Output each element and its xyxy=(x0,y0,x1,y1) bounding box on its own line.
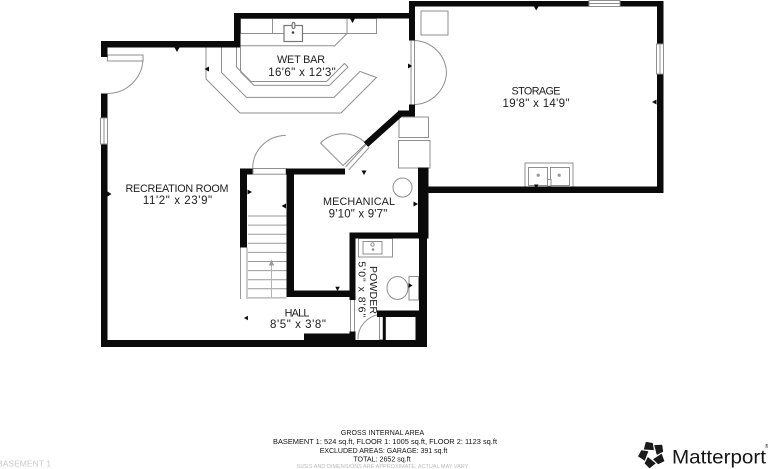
svg-text:TOTAL: 2652 sq.ft: TOTAL: 2652 sq.ft xyxy=(353,456,410,464)
svg-text:STORAGE: STORAGE xyxy=(512,86,561,98)
svg-text:BASEMENT 1: 524 sq.ft, FLOOR 1: BASEMENT 1: 524 sq.ft, FLOOR 1: 1005 sq.… xyxy=(273,437,497,446)
svg-text:MECHANICAL: MECHANICAL xyxy=(323,196,395,208)
svg-text:RECREATION ROOM: RECREATION ROOM xyxy=(126,183,229,195)
svg-text:SIZES AND DIMENSIONS ARE APPRO: SIZES AND DIMENSIONS ARE APPROXIMATE, AC… xyxy=(297,464,469,469)
svg-text:9'10" x 9'7": 9'10" x 9'7" xyxy=(329,209,388,221)
svg-text:5'0" x 8'6": 5'0" x 8'6" xyxy=(355,261,367,317)
svg-text:EXCLUDED AREAS: GARAGE: 391 sq: EXCLUDED AREAS: GARAGE: 391 sq.ft xyxy=(320,448,448,455)
svg-text:8'5" x 3'8": 8'5" x 3'8" xyxy=(270,319,326,331)
svg-text:16'6" x 12'3": 16'6" x 12'3" xyxy=(268,67,336,79)
svg-text:POWDER: POWDER xyxy=(367,266,379,314)
svg-text:19'8" x 14'9": 19'8" x 14'9" xyxy=(503,98,570,110)
svg-text:11'2" x 23'9": 11'2" x 23'9" xyxy=(143,195,212,207)
svg-text:WET BAR: WET BAR xyxy=(277,54,325,66)
svg-text:Matterport: Matterport xyxy=(672,447,767,469)
svg-text:BASEMENT 1: BASEMENT 1 xyxy=(0,459,51,469)
svg-text:HALL: HALL xyxy=(285,308,310,320)
svg-text:GROSS INTERNAL AREA: GROSS INTERNAL AREA xyxy=(341,430,425,437)
